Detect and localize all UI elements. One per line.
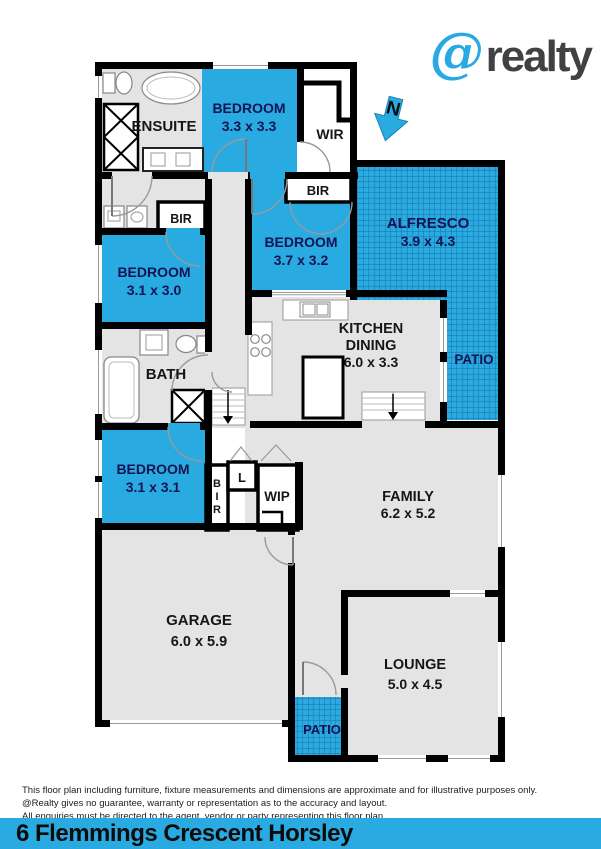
- kitchen-sink-icon: [300, 302, 330, 317]
- dims-bedroom-lower: 3.1 x 3.1: [126, 479, 181, 495]
- wip-right-wall: [295, 462, 303, 530]
- dims-bedroom-left: 3.1 x 3.0: [127, 282, 182, 298]
- stairs-family: [362, 392, 425, 420]
- label-linen: L: [238, 470, 246, 485]
- label-bir-vertical-b: B: [213, 478, 221, 490]
- north-label: N: [384, 97, 402, 121]
- label-wir: WIR: [316, 126, 343, 142]
- kitchen-island: [303, 357, 343, 418]
- bath-shower-icon: [172, 390, 205, 423]
- label-kitchen: KITCHEN: [339, 321, 403, 337]
- label-bedroom-lower: BEDROOM: [116, 461, 189, 477]
- label-bedroom-left: BEDROOM: [117, 264, 190, 280]
- label-dining: DINING: [346, 338, 397, 354]
- dims-lounge: 5.0 x 4.5: [388, 676, 443, 692]
- dims-family: 6.2 x 5.2: [381, 505, 436, 521]
- bath-vanity-icon: [140, 330, 168, 355]
- label-alfresco: ALFRESCO: [387, 215, 470, 232]
- label-bath: BATH: [146, 366, 187, 383]
- bath-toilet-icon: [176, 336, 206, 354]
- dims-garage: 6.0 x 5.9: [171, 634, 227, 650]
- north-arrow-icon: N: [369, 94, 413, 145]
- label-ensuite: ENSUITE: [131, 118, 196, 135]
- ensuite-shower-icon: [104, 104, 138, 170]
- dims-alfresco: 3.9 x 4.3: [401, 233, 456, 249]
- bath-tub-icon: [104, 357, 139, 423]
- label-patio-bottom: PATIO: [303, 722, 341, 737]
- label-bir-vertical-r: R: [213, 504, 221, 516]
- label-bir-bedroom-mid: BIR: [307, 183, 330, 198]
- property-address: 6 Flemmings Crescent Horsley: [0, 820, 353, 848]
- dims-kitchen-dining: 6.0 x 3.3: [344, 354, 399, 370]
- label-wip: WIP: [264, 489, 290, 504]
- disclaimer-line-1: This floor plan including furniture, fix…: [22, 784, 582, 797]
- disclaimer-line-2: @Realty gives no guarantee, warranty or …: [22, 797, 582, 810]
- ensuite-vanity-icon: [143, 148, 203, 171]
- stairs-hall: [212, 388, 245, 425]
- label-family: FAMILY: [382, 489, 434, 505]
- dims-bedroom-mid: 3.7 x 3.2: [274, 252, 329, 268]
- label-bedroom-top: BEDROOM: [212, 100, 285, 116]
- address-bar: 6 Flemmings Crescent Horsley: [0, 818, 601, 849]
- label-patio-side: PATIO: [454, 352, 493, 367]
- label-lounge: LOUNGE: [384, 657, 446, 673]
- floorplan-page: { "brand": { "at_symbol": "@", "wordmark…: [0, 0, 601, 849]
- floor-plan: ENSUITE BEDROOM 3.3 x 3.3 WIR BIR BEDROO…: [0, 0, 601, 780]
- label-bir-hall: BIR: [170, 212, 192, 226]
- label-garage: GARAGE: [166, 612, 232, 629]
- label-bir-vertical-i: I: [215, 491, 218, 503]
- label-bedroom-mid: BEDROOM: [264, 234, 337, 250]
- dims-bedroom-top: 3.3 x 3.3: [222, 118, 277, 134]
- ensuite-bathtub-icon: [142, 72, 200, 104]
